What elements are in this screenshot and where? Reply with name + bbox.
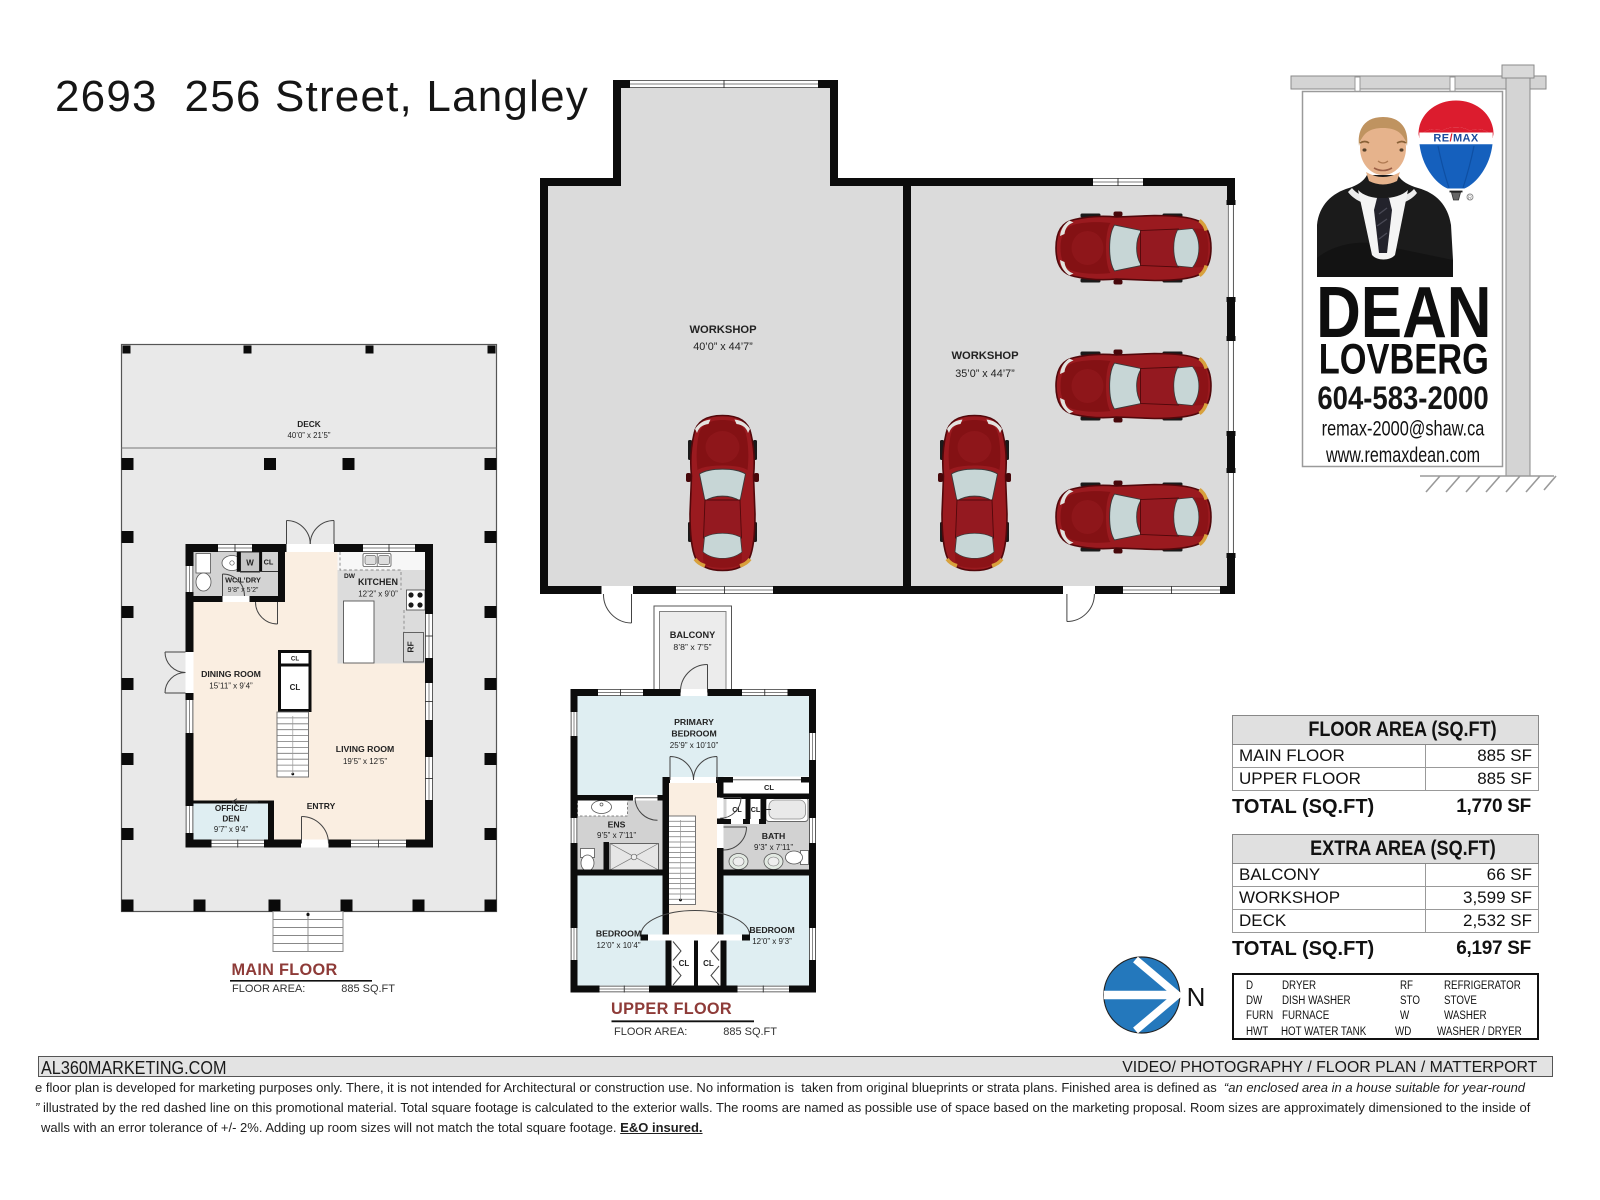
svg-text:BALCONY: BALCONY: [670, 630, 715, 640]
svg-text:BEDROOM: BEDROOM: [671, 729, 716, 739]
svg-text:PRIMARY: PRIMARY: [674, 717, 714, 727]
svg-text:CL: CL: [751, 805, 761, 814]
svg-text:9’5” x 7’11”: 9’5” x 7’11”: [597, 831, 636, 840]
svg-text:DEN: DEN: [222, 815, 239, 824]
svg-text:CL: CL: [291, 656, 299, 663]
svg-text:remax-2000@shaw.ca: remax-2000@shaw.ca: [1322, 417, 1485, 441]
svg-text:12’2” x 9’0”: 12’2” x 9’0”: [358, 590, 398, 599]
svg-text:CL: CL: [764, 783, 774, 792]
svg-text:UPPER FLOOR: UPPER FLOOR: [611, 1000, 732, 1018]
svg-text:12’0” x 10’4”: 12’0” x 10’4”: [596, 941, 640, 950]
svg-text:N: N: [1187, 982, 1206, 1012]
svg-text:885 SQ.FT: 885 SQ.FT: [723, 1026, 777, 1038]
svg-text:DINING ROOM: DINING ROOM: [201, 669, 261, 679]
svg-text:DW: DW: [344, 573, 356, 580]
svg-text:R: R: [1468, 196, 1472, 202]
svg-text:FLOOR AREA:: FLOOR AREA:: [614, 1026, 687, 1038]
svg-text:9’3” x 7’11”: 9’3” x 7’11”: [754, 843, 793, 852]
svg-text:15’11” x 9’4”: 15’11” x 9’4”: [209, 682, 253, 691]
svg-text:RF: RF: [406, 641, 416, 652]
svg-text:CL: CL: [679, 959, 690, 968]
svg-text:604-583-2000: 604-583-2000: [1317, 381, 1488, 416]
svg-text:CL: CL: [732, 805, 742, 814]
svg-text:CL: CL: [264, 558, 274, 567]
svg-text:BATH: BATH: [762, 831, 785, 841]
svg-text:WORKSHOP: WORKSHOP: [951, 350, 1019, 362]
svg-text:BEDROOM: BEDROOM: [596, 929, 641, 939]
svg-text:KITCHEN: KITCHEN: [358, 577, 398, 587]
svg-text:12’0” x 9’3”: 12’0” x 9’3”: [752, 937, 792, 946]
svg-text:DECK: DECK: [297, 419, 321, 429]
svg-text:LIVING ROOM: LIVING ROOM: [336, 744, 394, 754]
svg-text:19’5” x 12’5”: 19’5” x 12’5”: [343, 757, 387, 766]
svg-text:WC/L’DRY: WC/L’DRY: [225, 576, 261, 585]
svg-text:OFFICE/: OFFICE/: [215, 804, 248, 813]
svg-text:35’0” x 44’7”: 35’0” x 44’7”: [955, 368, 1015, 380]
svg-text:CL: CL: [703, 959, 714, 968]
svg-text:40’0” x 44’7”: 40’0” x 44’7”: [693, 341, 753, 353]
svg-text:885 SQ.FT: 885 SQ.FT: [341, 983, 395, 995]
svg-text:www.remaxdean.com: www.remaxdean.com: [1325, 444, 1480, 468]
svg-text:25’9” x 10’10”: 25’9” x 10’10”: [670, 741, 719, 750]
svg-text:LOVBERG: LOVBERG: [1319, 336, 1489, 383]
svg-text:ENS: ENS: [608, 820, 626, 830]
svg-text:40’0” x 21’5”: 40’0” x 21’5”: [288, 431, 331, 440]
svg-text:9’7” x 9’4”: 9’7” x 9’4”: [214, 825, 249, 834]
svg-text:WORKSHOP: WORKSHOP: [689, 324, 757, 336]
svg-text:ENTRY: ENTRY: [307, 801, 336, 811]
svg-text:BEDROOM: BEDROOM: [749, 925, 794, 935]
svg-text:CL: CL: [290, 683, 301, 692]
svg-text:8’8” x 7’5”: 8’8” x 7’5”: [673, 642, 711, 652]
svg-text:MAIN FLOOR: MAIN FLOOR: [231, 961, 337, 979]
svg-text:FLOOR AREA:: FLOOR AREA:: [232, 983, 305, 995]
svg-text:RE/MAX: RE/MAX: [1433, 132, 1478, 144]
svg-text:W: W: [246, 559, 254, 568]
